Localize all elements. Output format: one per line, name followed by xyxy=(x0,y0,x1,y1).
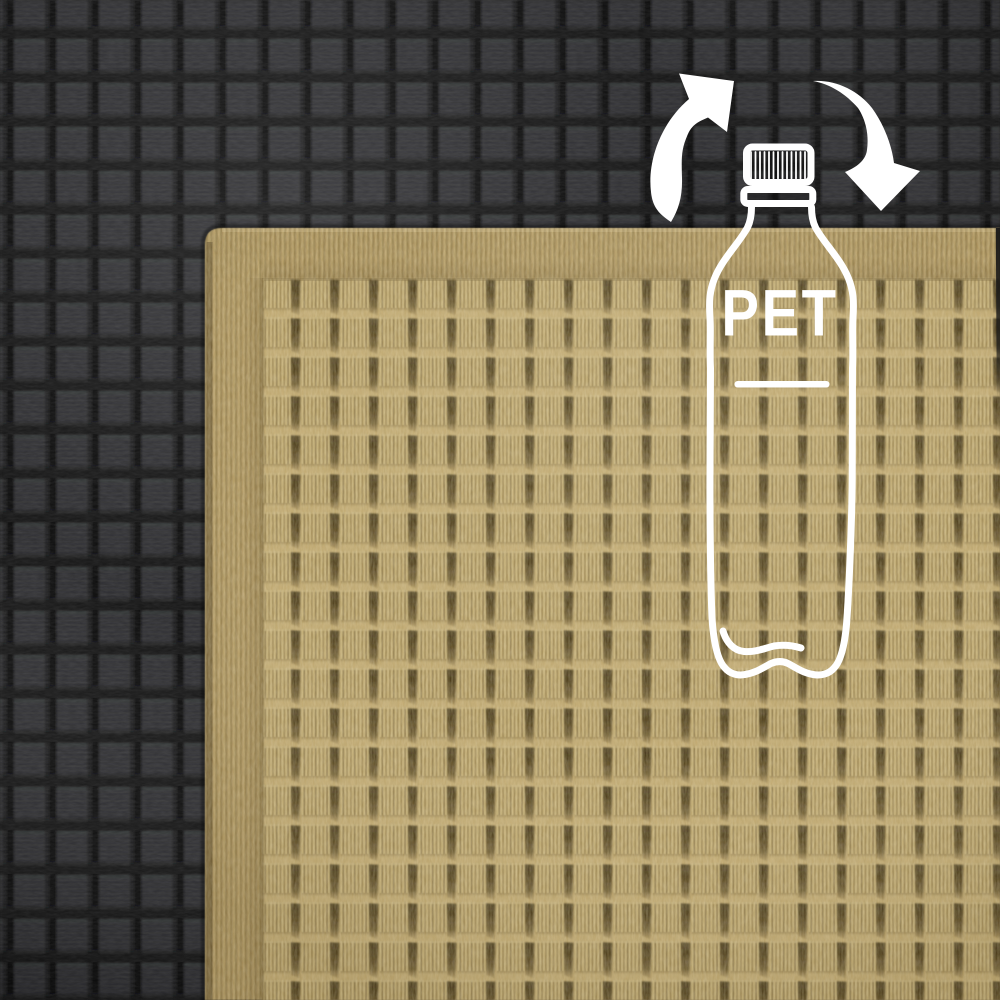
svg-text:PET: PET xyxy=(721,277,838,350)
